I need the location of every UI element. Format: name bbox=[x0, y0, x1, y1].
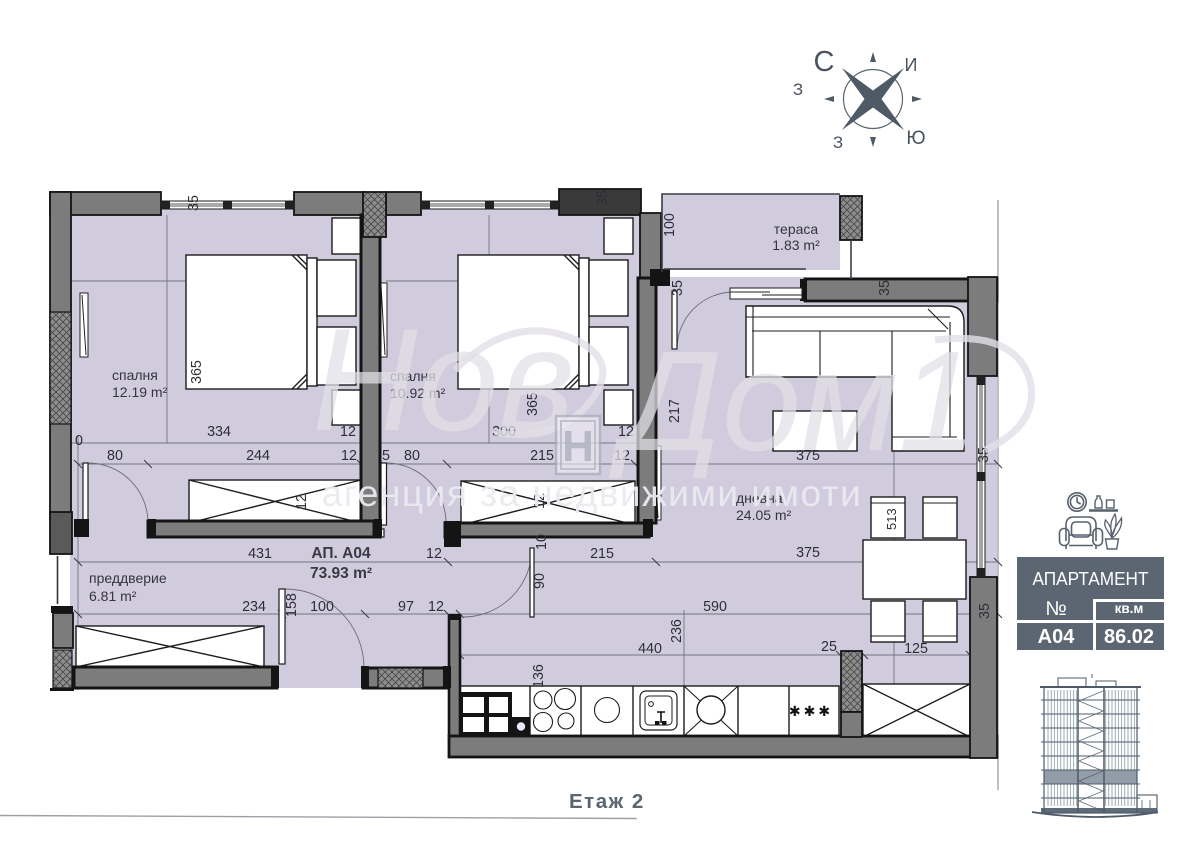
svg-text:✱✱✱: ✱✱✱ bbox=[789, 703, 833, 719]
svg-text:97: 97 bbox=[398, 599, 414, 615]
svg-text:А04: А04 bbox=[1038, 626, 1076, 648]
svg-text:334: 334 bbox=[207, 424, 231, 440]
svg-text:Ю: Ю bbox=[906, 128, 925, 149]
svg-text:234: 234 bbox=[242, 599, 266, 615]
svg-text:35: 35 bbox=[595, 190, 611, 206]
svg-text:35: 35 bbox=[877, 280, 893, 296]
svg-text:Етаж 2: Етаж 2 bbox=[569, 790, 645, 813]
svg-text:преддверие: преддверие bbox=[89, 570, 167, 586]
svg-text:З: З bbox=[793, 80, 803, 99]
svg-text:кв.м: кв.м bbox=[1115, 601, 1144, 616]
svg-text:1.83 m²: 1.83 m² bbox=[772, 237, 820, 253]
svg-text:АП. А04: АП. А04 bbox=[311, 545, 371, 562]
svg-text:215: 215 bbox=[590, 546, 614, 562]
svg-text:6.81 m²: 6.81 m² bbox=[89, 588, 137, 604]
svg-text:136: 136 bbox=[531, 664, 547, 688]
svg-text:35: 35 bbox=[977, 603, 993, 619]
svg-text:12.19 m²: 12.19 m² bbox=[112, 384, 168, 400]
svg-text:431: 431 bbox=[248, 546, 272, 562]
svg-text:И: И bbox=[905, 55, 918, 75]
svg-text:86.02: 86.02 bbox=[1104, 626, 1154, 648]
svg-text:375: 375 bbox=[796, 545, 820, 561]
svg-text:З: З bbox=[833, 133, 843, 152]
svg-text:тераса: тераса bbox=[774, 221, 819, 237]
svg-text:365: 365 bbox=[189, 360, 205, 384]
svg-text:№: № bbox=[1045, 598, 1066, 620]
svg-text:244: 244 bbox=[246, 448, 270, 464]
svg-text:125: 125 bbox=[904, 641, 928, 657]
svg-text:236: 236 bbox=[669, 619, 685, 643]
svg-text:80: 80 bbox=[107, 448, 123, 464]
svg-text:12: 12 bbox=[426, 546, 442, 562]
svg-text:513: 513 bbox=[884, 508, 899, 530]
svg-text:35: 35 bbox=[186, 195, 202, 211]
svg-text:90: 90 bbox=[532, 573, 548, 589]
svg-text:Дом1: Дом1 bbox=[608, 322, 977, 481]
svg-text:10: 10 bbox=[534, 534, 550, 550]
svg-text:H: H bbox=[562, 422, 594, 471]
svg-text:100: 100 bbox=[310, 599, 334, 615]
svg-text:спалня: спалня bbox=[112, 367, 158, 383]
svg-text:158: 158 bbox=[284, 593, 300, 617]
svg-text:35: 35 bbox=[670, 280, 686, 296]
svg-text:АПАРТАМЕНТ: АПАРТАМЕНТ bbox=[1033, 569, 1149, 589]
svg-text:590: 590 bbox=[703, 599, 727, 615]
svg-text:12: 12 bbox=[294, 494, 310, 510]
svg-text:С: С bbox=[814, 46, 835, 78]
svg-text:агенция за недвижими имоти: агенция за недвижими имоти bbox=[322, 473, 863, 514]
svg-text:25: 25 bbox=[821, 639, 837, 655]
svg-text:440: 440 bbox=[638, 641, 662, 657]
svg-text:12: 12 bbox=[428, 599, 444, 615]
svg-text:100: 100 bbox=[662, 213, 678, 237]
svg-text:73.93 m²: 73.93 m² bbox=[310, 565, 372, 582]
svg-text:0: 0 bbox=[75, 433, 83, 449]
